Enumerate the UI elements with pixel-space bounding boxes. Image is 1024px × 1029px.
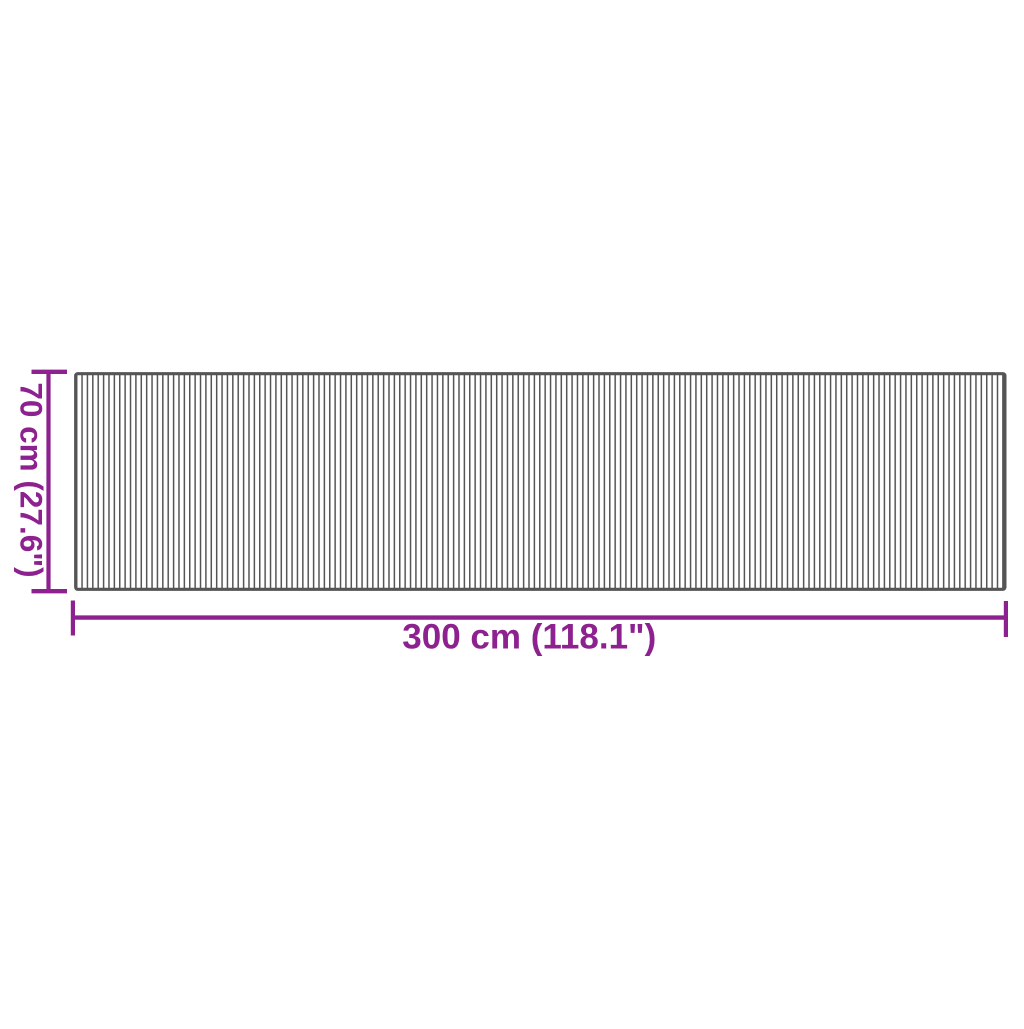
- svg-text:70 cm (27.6"): 70 cm (27.6"): [13, 382, 49, 577]
- svg-text:300 cm (118.1"): 300 cm (118.1"): [402, 618, 656, 657]
